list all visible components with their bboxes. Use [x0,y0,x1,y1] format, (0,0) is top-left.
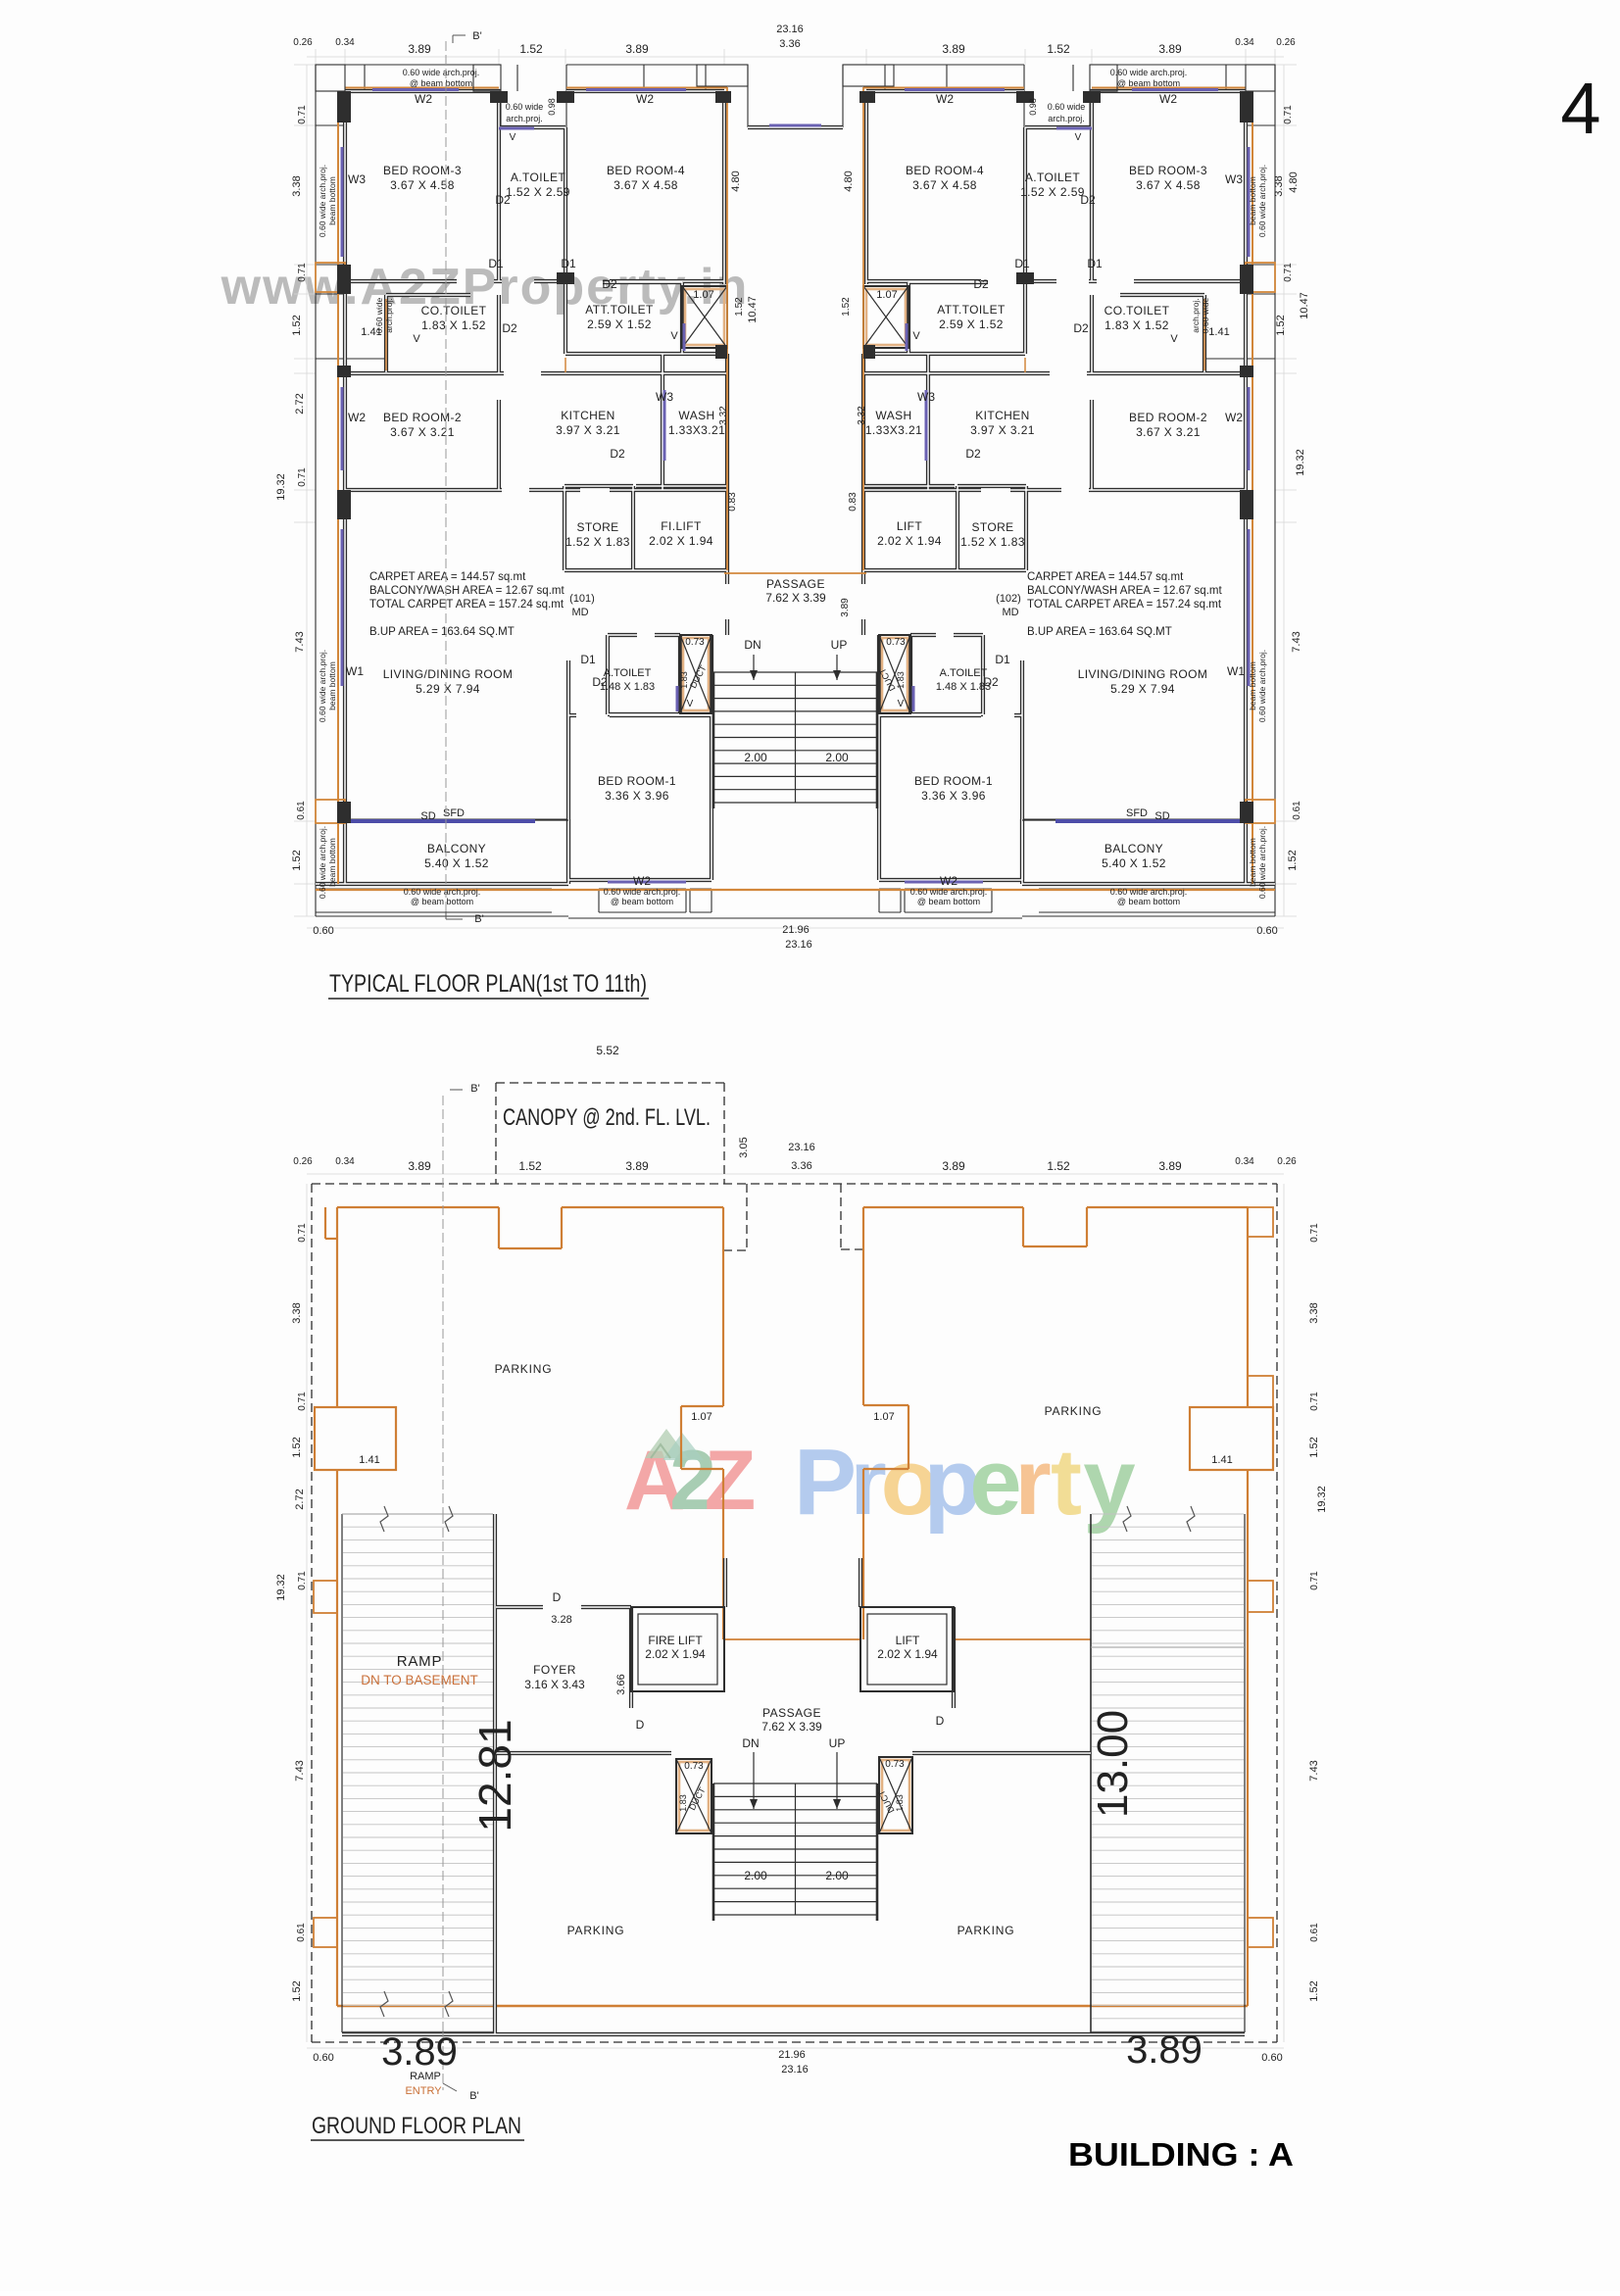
svg-text:12.81: 12.81 [469,1719,520,1832]
svg-text:3.67 X 4.58: 3.67 X 4.58 [912,178,977,192]
svg-text:2.00: 2.00 [825,1869,849,1882]
svg-text:4.80: 4.80 [730,171,742,191]
svg-text:FI.LIFT: FI.LIFT [661,519,702,533]
svg-text:0.26: 0.26 [293,37,313,48]
svg-text:3.67 X 3.21: 3.67 X 3.21 [390,425,455,439]
svg-text:0.26: 0.26 [1276,37,1296,48]
svg-text:2.02 X 1.94: 2.02 X 1.94 [877,1647,938,1661]
svg-text:W2: W2 [633,874,651,888]
svg-text:3.32: 3.32 [718,406,729,425]
svg-text:1.83 X 1.52: 1.83 X 1.52 [421,318,486,332]
svg-text:1.52: 1.52 [1047,1159,1070,1173]
svg-text:1.07: 1.07 [876,289,897,301]
svg-text:W3: W3 [1225,172,1243,186]
svg-text:1.52: 1.52 [518,1159,542,1173]
svg-text:23.16: 23.16 [788,1142,815,1153]
svg-text:3.36 X 3.96: 3.36 X 3.96 [605,789,669,803]
svg-text:UP: UP [829,1736,846,1750]
svg-text:@ beam bottom: @ beam bottom [1117,78,1180,88]
svg-text:0.71: 0.71 [1309,1571,1320,1590]
svg-text:0.26: 0.26 [1277,1156,1297,1167]
svg-text:1.52 X 2.59: 1.52 X 2.59 [1020,185,1085,199]
svg-text:0.60 wide arch.proj.: 0.60 wide arch.proj. [318,826,327,899]
svg-text:1.52: 1.52 [291,850,303,870]
svg-text:V: V [912,330,920,342]
svg-text:5.29 X 7.94: 5.29 X 7.94 [1110,682,1175,696]
svg-text:2.59 X 1.52: 2.59 X 1.52 [939,318,1004,331]
svg-text:W2: W2 [348,411,366,424]
svg-text:1.52: 1.52 [1275,315,1287,335]
svg-text:0.60: 0.60 [313,925,333,937]
svg-text:0.71: 0.71 [1309,1223,1320,1243]
svg-text:V: V [898,699,905,709]
svg-text:B': B' [472,30,481,42]
svg-text:D: D [936,1714,945,1728]
svg-text:LIFT: LIFT [896,1634,920,1647]
svg-text:BED ROOM-2: BED ROOM-2 [383,411,462,424]
svg-text:4.80: 4.80 [1288,171,1300,192]
svg-text:4: 4 [1560,68,1600,149]
svg-text:10.47: 10.47 [747,296,759,323]
svg-text:PARKING: PARKING [567,1924,625,1937]
svg-text:SD: SD [420,810,435,822]
svg-text:1.52: 1.52 [519,42,543,56]
svg-text:3.89: 3.89 [408,1159,431,1173]
svg-text:BED ROOM-3: BED ROOM-3 [1129,164,1207,177]
svg-text:1.41: 1.41 [1211,1454,1232,1466]
svg-text:0.73: 0.73 [684,1761,704,1772]
svg-text:0.83: 0.83 [848,492,859,512]
svg-text:@ beam bottom: @ beam bottom [917,897,980,906]
svg-text:7.43: 7.43 [1308,1760,1320,1781]
svg-text:D1: D1 [1087,257,1103,270]
svg-text:0.61: 0.61 [296,1923,307,1942]
svg-text:3.67 X 4.58: 3.67 X 4.58 [1136,178,1201,192]
svg-text:2.02 X 1.94: 2.02 X 1.94 [649,534,713,548]
svg-text:A.TOILET: A.TOILET [940,667,988,679]
svg-text:5.40 X 1.52: 5.40 X 1.52 [424,856,489,870]
svg-text:BALCONY/WASH AREA = 12.67 sq.m: BALCONY/WASH AREA = 12.67 sq.mt [1027,585,1222,597]
svg-text:1.52: 1.52 [1308,1437,1320,1457]
svg-text:1.52: 1.52 [734,297,745,317]
svg-text:1.52: 1.52 [291,315,303,335]
svg-text:BED ROOM-2: BED ROOM-2 [1129,411,1207,424]
svg-text:5.40 X 1.52: 5.40 X 1.52 [1102,856,1166,870]
svg-text:7.43: 7.43 [294,631,306,652]
svg-text:3.38: 3.38 [1273,175,1285,196]
svg-text:V: V [510,132,516,143]
svg-text:1.52: 1.52 [1308,1980,1320,2001]
svg-text:3.38: 3.38 [291,175,303,196]
svg-text:PARKING: PARKING [495,1362,553,1376]
svg-text:B.UP AREA = 163.64 SQ.MT: B.UP AREA = 163.64 SQ.MT [369,626,515,638]
svg-text:3.32: 3.32 [857,406,867,425]
svg-text:V: V [687,699,694,709]
svg-text:5.29 X 7.94: 5.29 X 7.94 [416,682,480,696]
svg-text:3.67 X 4.58: 3.67 X 4.58 [390,178,455,192]
svg-text:23.16: 23.16 [776,24,804,35]
svg-text:23.16: 23.16 [781,2064,809,2076]
svg-text:0.73: 0.73 [886,637,906,648]
svg-text:0.71: 0.71 [297,1223,308,1243]
svg-text:1.07: 1.07 [873,1411,894,1423]
svg-text:7.62 X 3.39: 7.62 X 3.39 [765,591,826,605]
svg-text:7.43: 7.43 [1291,631,1302,652]
svg-text:RAMP: RAMP [397,1653,443,1670]
svg-text:19.32: 19.32 [275,473,287,501]
svg-text:2.02 X 1.94: 2.02 X 1.94 [645,1647,706,1661]
svg-text:D1: D1 [995,653,1010,666]
svg-text:3.89: 3.89 [942,42,965,56]
svg-text:V: V [413,333,420,345]
svg-text:21.96: 21.96 [778,2049,806,2061]
svg-text:WASH: WASH [875,409,911,422]
svg-text:DN: DN [742,1736,759,1750]
svg-text:0.71: 0.71 [1309,1392,1320,1411]
svg-text:CARPET AREA = 144.57 sq.mt: CARPET AREA = 144.57 sq.mt [369,571,526,583]
svg-text:0.98: 0.98 [547,98,557,116]
svg-text:0.73: 0.73 [885,1759,905,1770]
svg-text:BED ROOM-1: BED ROOM-1 [598,774,676,788]
svg-text:ENTRY: ENTRY [405,2085,442,2097]
svg-text:0.34: 0.34 [335,37,355,48]
svg-text:3.36: 3.36 [791,1160,811,1172]
svg-text:A.TOILET: A.TOILET [604,667,652,679]
svg-text:B': B' [469,2090,478,2102]
svg-text:FOYER: FOYER [533,1663,576,1677]
svg-text:ATT.TOILET: ATT.TOILET [585,303,654,317]
svg-text:3.67 X 4.58: 3.67 X 4.58 [614,178,678,192]
svg-text:19.32: 19.32 [1316,1486,1328,1513]
svg-text:KITCHEN: KITCHEN [975,409,1029,422]
svg-text:1.33X3.21: 1.33X3.21 [668,423,725,437]
svg-text:DN: DN [744,638,761,652]
svg-text:3.89: 3.89 [840,598,851,617]
svg-text:UP: UP [831,638,848,652]
svg-text:W2: W2 [936,92,954,106]
svg-text:A.TOILET: A.TOILET [1025,171,1081,184]
svg-text:D2: D2 [1073,321,1089,335]
svg-text:0.71: 0.71 [297,1392,308,1411]
svg-text:3.28: 3.28 [551,1614,571,1626]
svg-text:TOTAL CARPET AREA = 157.24 sq.: TOTAL CARPET AREA = 157.24 sq.mt [369,599,565,611]
svg-text:0.60 wide arch.proj.: 0.60 wide arch.proj. [1110,68,1188,77]
svg-text:0.60 wide arch.proj.: 0.60 wide arch.proj. [1257,650,1267,722]
svg-text:D2: D2 [983,675,999,689]
svg-text:0.60: 0.60 [1256,925,1277,937]
svg-text:B': B' [474,913,483,925]
svg-text:BALCONY: BALCONY [427,842,486,855]
svg-text:1.83: 1.83 [895,1794,905,1812]
svg-text:0.71: 0.71 [1283,263,1294,282]
svg-text:BED ROOM-4: BED ROOM-4 [607,164,685,177]
svg-text:0.60 wide arch.proj.: 0.60 wide arch.proj. [318,165,327,237]
svg-text:STORE: STORE [576,520,618,534]
svg-text:2.00: 2.00 [744,751,767,764]
svg-text:5.52: 5.52 [596,1044,619,1057]
svg-text:1.52: 1.52 [291,1437,303,1457]
svg-text:2.72: 2.72 [294,1489,306,1509]
svg-text:A.TOILET: A.TOILET [511,171,566,184]
svg-text:0.34: 0.34 [1235,37,1254,48]
svg-text:arch.proj.: arch.proj. [506,114,543,123]
svg-text:FIRE LIFT: FIRE LIFT [648,1634,703,1647]
svg-text:arch.proj.: arch.proj. [1048,114,1085,123]
svg-text:r: r [1014,1430,1051,1535]
svg-text:0.60 wide arch.proj.: 0.60 wide arch.proj. [318,650,327,722]
svg-text:WASH: WASH [678,409,714,422]
svg-text:TYPICAL FLOOR PLAN(1st TO 11th: TYPICAL FLOOR PLAN(1st TO 11th) [329,970,647,998]
svg-text:D1: D1 [488,257,504,270]
svg-text:0.60 wide arch.proj.: 0.60 wide arch.proj. [403,68,480,77]
svg-text:3.89: 3.89 [625,1159,649,1173]
svg-text:0.60 wide arch.proj.: 0.60 wide arch.proj. [1257,165,1267,237]
svg-text:1.52: 1.52 [1047,42,1070,56]
svg-text:V: V [670,330,678,342]
svg-text:LIVING/DINING ROOM: LIVING/DINING ROOM [383,667,514,681]
svg-text:t: t [1051,1430,1082,1535]
svg-text:4.80: 4.80 [843,171,855,191]
svg-text:GROUND FLOOR PLAN: GROUND FLOOR PLAN [312,2113,521,2139]
svg-text:13.00: 13.00 [1089,1710,1137,1818]
svg-text:TOTAL CARPET AREA = 157.24 sq.: TOTAL CARPET AREA = 157.24 sq.mt [1027,599,1222,611]
svg-text:PARKING: PARKING [957,1924,1015,1937]
svg-text:0.60 wide arch.proj.: 0.60 wide arch.proj. [1257,826,1267,899]
svg-text:beam bottom: beam bottom [327,661,337,710]
svg-text:W2: W2 [636,92,654,106]
svg-text:LIVING/DINING ROOM: LIVING/DINING ROOM [1078,667,1208,681]
svg-text:W1: W1 [1227,664,1245,678]
svg-text:D2: D2 [502,321,517,335]
svg-text:CANOPY @ 2nd. FL. LVL.: CANOPY @ 2nd. FL. LVL. [503,1104,711,1131]
svg-text:3.36: 3.36 [779,38,800,50]
svg-text:beam bottom: beam bottom [1248,176,1257,225]
svg-text:D1: D1 [1014,257,1030,270]
svg-text:0.71: 0.71 [1283,105,1294,124]
svg-text:B': B' [470,1083,479,1095]
svg-text:PASSAGE: PASSAGE [766,577,825,591]
svg-text:1.52: 1.52 [1287,850,1299,870]
svg-text:0.98: 0.98 [1028,98,1038,116]
svg-text:19.32: 19.32 [275,1574,287,1601]
svg-text:1.33X3.21: 1.33X3.21 [865,423,922,437]
svg-text:D2: D2 [602,277,617,291]
svg-text:0.34: 0.34 [1235,1156,1254,1167]
svg-text:1.52 X 2.59: 1.52 X 2.59 [506,185,570,199]
svg-text:@ beam bottom: @ beam bottom [1117,897,1180,906]
svg-text:10.47: 10.47 [1299,292,1310,319]
svg-text:1.83: 1.83 [679,671,689,689]
svg-text:0.60 wide arch.proj.: 0.60 wide arch.proj. [404,887,481,897]
svg-text:2.59 X 1.52: 2.59 X 1.52 [587,318,652,331]
svg-text:0.26: 0.26 [293,1156,313,1167]
svg-text:7.43: 7.43 [294,1760,306,1781]
svg-text:1.48 X 1.83: 1.48 X 1.83 [600,681,655,693]
svg-text:19.32: 19.32 [1295,449,1306,476]
svg-text:(101): (101) [569,593,595,605]
svg-text:P: P [794,1430,857,1535]
svg-text:beam bottom: beam bottom [1248,661,1257,710]
svg-text:0.60 wide arch.proj.: 0.60 wide arch.proj. [910,887,988,897]
svg-text:ATT.TOILET: ATT.TOILET [937,303,1006,317]
svg-text:0.71: 0.71 [297,1571,308,1590]
svg-text:MD: MD [571,607,588,618]
svg-text:0.60: 0.60 [313,2052,333,2064]
svg-text:W1: W1 [346,664,364,678]
svg-text:0.60 wide: 0.60 wide [506,102,544,112]
svg-text:3.89: 3.89 [408,42,431,56]
svg-text:1.41: 1.41 [361,326,381,338]
svg-text:CO.TOILET: CO.TOILET [1105,304,1170,318]
svg-text:CO.TOILET: CO.TOILET [421,304,487,318]
svg-text:3.36 X 3.96: 3.36 X 3.96 [921,789,986,803]
svg-text:2.02 X 1.94: 2.02 X 1.94 [877,534,942,548]
svg-text:3.16 X 3.43: 3.16 X 3.43 [524,1678,585,1691]
svg-text:DN TO BASEMENT: DN TO BASEMENT [361,1673,478,1687]
svg-text:3.89: 3.89 [1158,42,1182,56]
svg-text:3.67 X 3.21: 3.67 X 3.21 [1136,425,1201,439]
svg-text:1.41: 1.41 [1208,326,1229,338]
svg-text:beam bottom: beam bottom [1248,838,1257,887]
svg-text:arch.proj.: arch.proj. [1191,298,1201,332]
svg-text:D: D [553,1590,562,1604]
svg-text:21.96: 21.96 [782,924,810,936]
svg-text:BUILDING : A: BUILDING : A [1068,2136,1294,2173]
svg-text:23.16: 23.16 [785,939,812,951]
svg-text:@ beam bottom: @ beam bottom [611,897,673,906]
svg-text:2.72: 2.72 [294,393,306,414]
svg-text:2.00: 2.00 [825,751,849,764]
svg-text:arch.proj.: arch.proj. [384,298,394,332]
svg-text:3.89: 3.89 [1158,1159,1182,1173]
svg-text:1.83: 1.83 [678,1794,688,1812]
svg-text:3.38: 3.38 [1308,1302,1320,1323]
svg-text:3.97 X 3.21: 3.97 X 3.21 [556,423,620,437]
svg-text:W2: W2 [1225,411,1243,424]
svg-text:beam bottom: beam bottom [327,838,337,887]
svg-text:D2: D2 [592,675,608,689]
svg-text:1.07: 1.07 [693,289,713,301]
svg-text:3.89: 3.89 [381,2030,458,2074]
svg-text:1.52 X 1.83: 1.52 X 1.83 [565,535,630,549]
svg-text:D2: D2 [495,193,511,207]
svg-text:KITCHEN: KITCHEN [561,409,614,422]
svg-text:W3: W3 [917,390,935,404]
svg-text:B.UP AREA = 163.64 SQ.MT: B.UP AREA = 163.64 SQ.MT [1027,626,1172,638]
svg-text:BED ROOM-1: BED ROOM-1 [914,774,993,788]
svg-text:W2: W2 [1159,92,1177,106]
svg-text:3.38: 3.38 [291,1302,303,1323]
svg-text:V: V [1170,333,1178,345]
svg-text:Z: Z [705,1434,757,1528]
svg-text:SFD: SFD [1126,807,1148,819]
svg-text:RAMP: RAMP [410,2071,441,2082]
svg-text:V: V [1075,132,1082,143]
svg-text:1.52: 1.52 [291,1980,303,2001]
svg-text:0.60 wide: 0.60 wide [1048,102,1086,112]
svg-text:0.71: 0.71 [297,467,308,487]
svg-text:3.89: 3.89 [942,1159,965,1173]
svg-text:0.71: 0.71 [297,263,308,282]
svg-text:BED ROOM-3: BED ROOM-3 [383,164,462,177]
svg-text:PASSAGE: PASSAGE [762,1706,821,1720]
svg-text:3.89: 3.89 [1126,2028,1203,2072]
svg-text:MD: MD [1002,607,1018,618]
svg-text:1.07: 1.07 [691,1411,712,1423]
svg-text:beam bottom: beam bottom [327,176,337,225]
svg-text:0.60 wide arch.proj.: 0.60 wide arch.proj. [604,887,681,897]
svg-text:W3: W3 [348,172,366,186]
svg-text:@ beam bottom: @ beam bottom [410,78,472,88]
svg-text:0.60: 0.60 [1261,2052,1282,2064]
svg-text:0.34: 0.34 [335,1156,355,1167]
svg-text:CARPET AREA = 144.57 sq.mt: CARPET AREA = 144.57 sq.mt [1027,571,1184,583]
svg-text:D2: D2 [1080,193,1096,207]
svg-text:0.60 wide arch.proj.: 0.60 wide arch.proj. [1110,887,1188,897]
svg-text:D2: D2 [965,447,981,461]
svg-text:1.83 X 1.52: 1.83 X 1.52 [1105,318,1169,332]
svg-text:LIFT: LIFT [897,519,923,533]
svg-text:0.73: 0.73 [685,637,705,648]
svg-text:D: D [636,1718,645,1732]
svg-text:1.52: 1.52 [841,297,852,317]
svg-text:3.89: 3.89 [625,42,649,56]
svg-text:1.83: 1.83 [896,671,906,689]
svg-text:SD: SD [1154,810,1169,822]
svg-text:0.61: 0.61 [1309,1923,1320,1942]
svg-text:D2: D2 [610,447,625,461]
svg-text:BALCONY/WASH AREA = 12.67 sq.m: BALCONY/WASH AREA = 12.67 sq.mt [369,585,565,597]
svg-text:3.05: 3.05 [738,1137,750,1157]
svg-text:0.61: 0.61 [1292,801,1302,820]
svg-text:W2: W2 [415,92,432,106]
svg-text:3.66: 3.66 [615,1674,627,1694]
svg-text:1.52 X 1.83: 1.52 X 1.83 [960,535,1025,549]
svg-text:PARKING: PARKING [1045,1404,1103,1418]
svg-text:STORE: STORE [971,520,1013,534]
svg-text:3.97 X 3.21: 3.97 X 3.21 [970,423,1035,437]
svg-text:BALCONY: BALCONY [1105,842,1163,855]
svg-text:D1: D1 [580,653,596,666]
svg-text:7.62 X 3.39: 7.62 X 3.39 [761,1720,822,1734]
svg-text:0.71: 0.71 [297,105,308,124]
svg-text:1.41: 1.41 [359,1454,379,1466]
svg-text:@ beam bottom: @ beam bottom [411,897,473,906]
svg-text:BED ROOM-4: BED ROOM-4 [906,164,984,177]
svg-text:D1: D1 [561,257,576,270]
svg-text:0.61: 0.61 [296,801,307,820]
svg-text:W3: W3 [656,390,673,404]
svg-text:(102): (102) [996,593,1021,605]
svg-text:W2: W2 [940,874,957,888]
svg-text:0.83: 0.83 [727,492,738,512]
svg-text:D2: D2 [973,277,989,291]
svg-text:2.00: 2.00 [744,1869,767,1882]
